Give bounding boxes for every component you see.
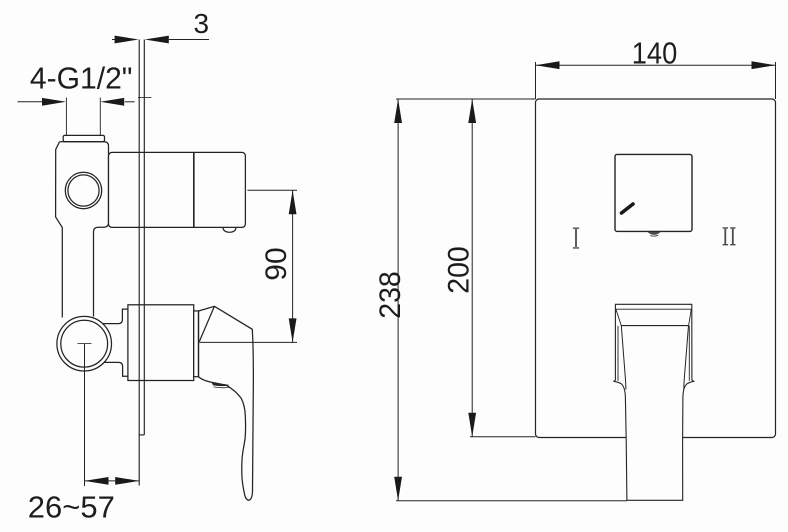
svg-text:238: 238 — [374, 271, 407, 319]
svg-text:3: 3 — [194, 8, 210, 39]
svg-text:26~57: 26~57 — [28, 489, 115, 524]
svg-text:90: 90 — [260, 247, 293, 280]
svg-text:140: 140 — [632, 37, 678, 71]
svg-text:4-G1/2": 4-G1/2" — [30, 61, 133, 96]
svg-text:200: 200 — [443, 246, 476, 294]
